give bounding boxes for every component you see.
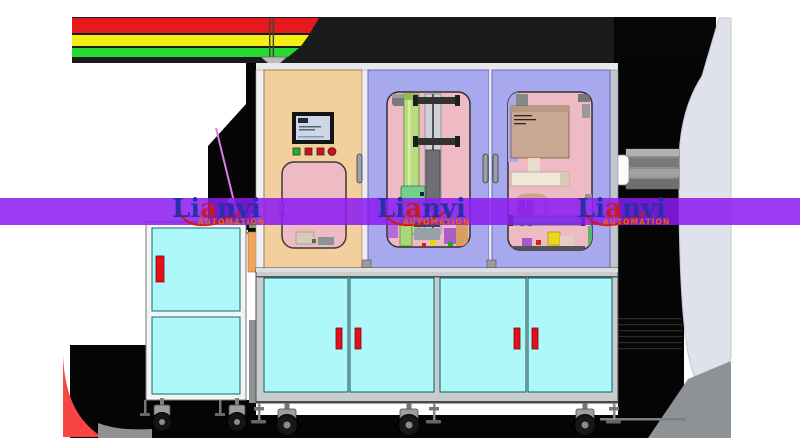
panel-handle (357, 154, 362, 183)
control-panel (264, 70, 362, 268)
stand-door-handle (156, 256, 164, 282)
indicator-green (293, 148, 300, 155)
machine-right-post (610, 70, 618, 268)
right-door (492, 70, 610, 268)
hinge-knob-2 (487, 260, 496, 268)
lower-cabinet (256, 268, 618, 403)
indicator-red-1 (305, 148, 312, 155)
color-stripe-green (72, 48, 299, 57)
center-door-handle (483, 154, 488, 183)
cabinet-door-2 (350, 278, 434, 392)
machine-left-post (256, 70, 264, 268)
brand-subtitle: AUTOMATION (403, 218, 470, 227)
cabinet-door-4 (528, 278, 612, 392)
panel-door-divider (362, 70, 368, 268)
right-side-panel (618, 63, 684, 438)
brand-subtitle: AUTOMATION (198, 218, 265, 227)
cabinet-handle-3 (514, 328, 520, 349)
brand-logo-center: Lianyi AUTOMATION (377, 194, 470, 227)
indicator-red-2 (317, 148, 324, 155)
cabinet-door-1 (264, 278, 348, 392)
center-door (368, 70, 489, 268)
equipment-plate (511, 106, 569, 158)
motor-cylinder (615, 149, 679, 189)
door-gap (489, 70, 492, 268)
brand-logo-right: Lianyi AUTOMATION (577, 194, 670, 227)
cabinet-handle-2 (355, 328, 361, 349)
brand-logo-left: Lianyi AUTOMATION (172, 194, 265, 227)
indicator-red-round (328, 148, 336, 156)
brand-subtitle: AUTOMATION (603, 218, 670, 227)
right-door-handle (493, 154, 498, 183)
main-floor-shadow (250, 415, 660, 438)
machine-render: Lianyi AUTOMATION Lianyi AUTOMATION Lian… (0, 0, 800, 438)
cabinet-handle-4 (532, 328, 538, 349)
hmi-display (292, 112, 334, 144)
cabinet-handle-1 (336, 328, 342, 349)
hinge-knob-1 (362, 260, 371, 268)
left-stand-cabinet (146, 222, 246, 400)
stand-door-upper (152, 228, 240, 311)
top-black-band-right (614, 17, 716, 63)
cabinet-door-3 (440, 278, 526, 392)
color-stripe-red (72, 18, 319, 33)
stand-door-lower (152, 317, 240, 394)
